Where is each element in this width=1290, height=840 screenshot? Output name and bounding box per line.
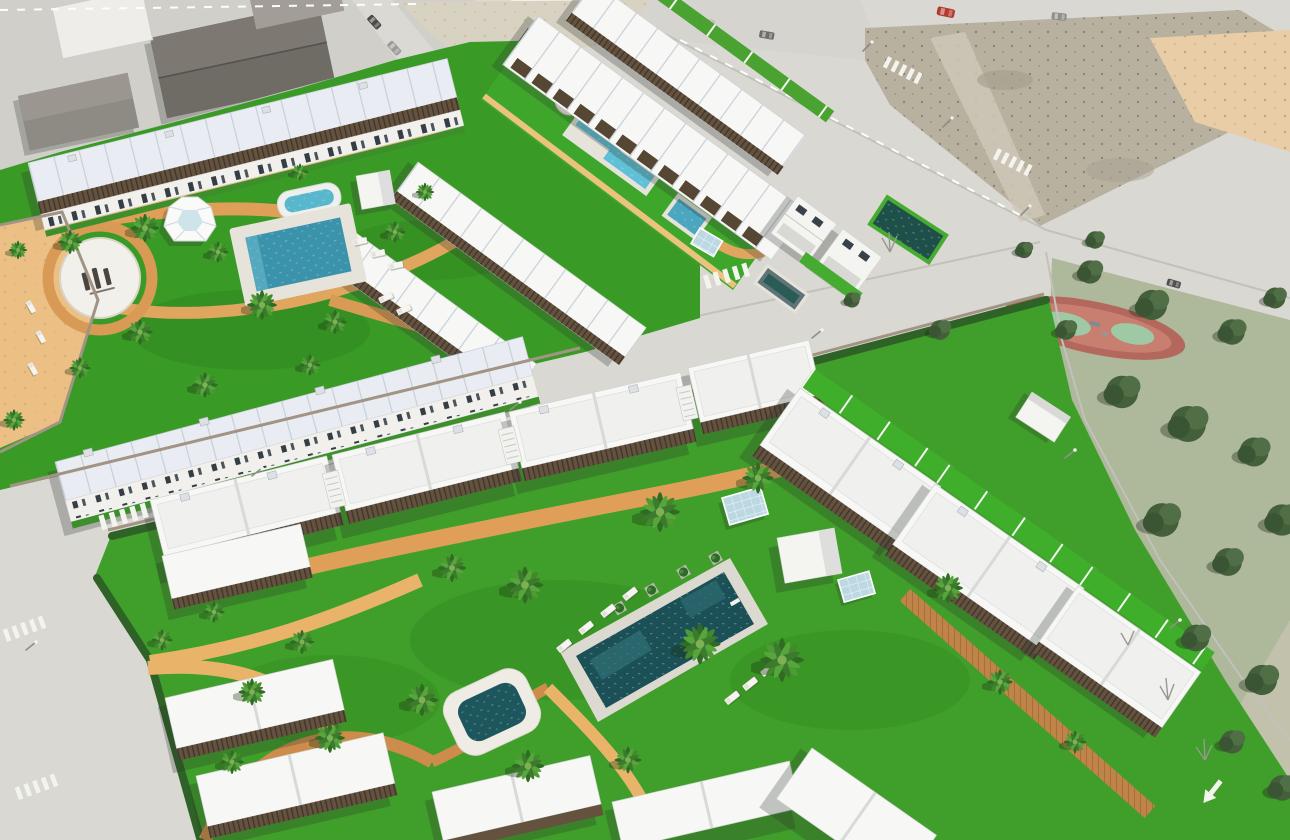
scene-canvas [0, 0, 1290, 840]
cube-building [349, 170, 396, 216]
car [1051, 12, 1067, 21]
aerial-render [0, 0, 1290, 840]
